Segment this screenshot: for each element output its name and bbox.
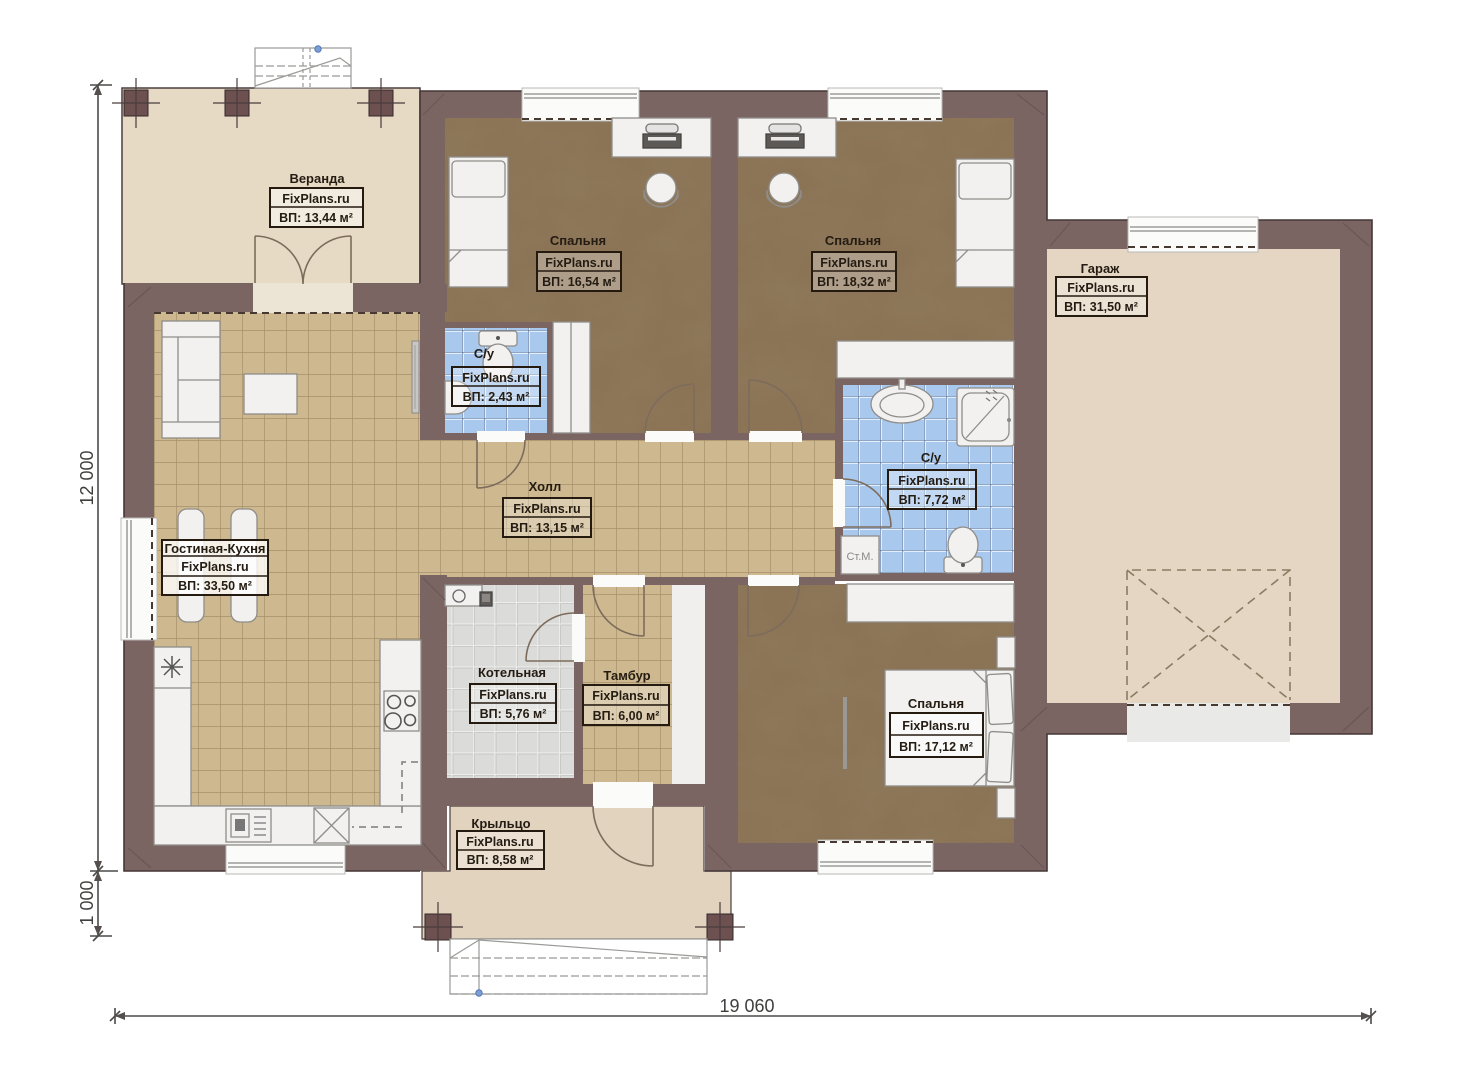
svg-text:Веранда: Веранда [289, 171, 345, 186]
svg-text:ВП: 33,50 м²: ВП: 33,50 м² [178, 579, 252, 593]
svg-text:ВП: 31,50 м²: ВП: 31,50 м² [1064, 300, 1138, 314]
svg-text:ВП: 7,72 м²: ВП: 7,72 м² [899, 493, 966, 507]
svg-text:С/у: С/у [474, 346, 495, 361]
svg-text:FixPlans.ru: FixPlans.ru [513, 502, 580, 516]
svg-text:ВП: 8,58 м²: ВП: 8,58 м² [467, 853, 534, 867]
svg-text:ВП: 2,43 м²: ВП: 2,43 м² [463, 390, 530, 404]
svg-text:Котельная: Котельная [478, 665, 546, 680]
svg-text:FixPlans.ru: FixPlans.ru [898, 474, 965, 488]
svg-text:FixPlans.ru: FixPlans.ru [181, 560, 248, 574]
svg-text:Ст.М.: Ст.М. [846, 551, 873, 563]
svg-text:FixPlans.ru: FixPlans.ru [820, 256, 887, 270]
svg-text:FixPlans.ru: FixPlans.ru [592, 689, 659, 703]
svg-text:Холл: Холл [529, 479, 562, 494]
svg-text:1 000: 1 000 [77, 880, 97, 925]
svg-text:19 060: 19 060 [719, 996, 774, 1016]
svg-text:FixPlans.ru: FixPlans.ru [545, 256, 612, 270]
svg-text:FixPlans.ru: FixPlans.ru [466, 835, 533, 849]
svg-text:ВП: 6,00 м²: ВП: 6,00 м² [593, 709, 660, 723]
svg-text:С/у: С/у [921, 450, 942, 465]
svg-text:ВП: 13,44 м²: ВП: 13,44 м² [279, 211, 353, 225]
svg-text:Спальня: Спальня [908, 696, 964, 711]
svg-text:Спальня: Спальня [550, 233, 606, 248]
svg-text:FixPlans.ru: FixPlans.ru [902, 719, 969, 733]
svg-text:FixPlans.ru: FixPlans.ru [1067, 281, 1134, 295]
svg-text:Гостиная-Кухня: Гостиная-Кухня [164, 541, 265, 556]
svg-text:ВП: 17,12 м²: ВП: 17,12 м² [899, 740, 973, 754]
svg-text:FixPlans.ru: FixPlans.ru [282, 192, 349, 206]
svg-text:12 000: 12 000 [77, 450, 97, 505]
svg-text:FixPlans.ru: FixPlans.ru [462, 371, 529, 385]
svg-text:ВП: 13,15 м²: ВП: 13,15 м² [510, 521, 584, 535]
svg-text:Крыльцо: Крыльцо [471, 816, 530, 831]
svg-text:ВП: 16,54 м²: ВП: 16,54 м² [542, 275, 616, 289]
svg-text:ВП: 5,76 м²: ВП: 5,76 м² [480, 707, 547, 721]
svg-text:Спальня: Спальня [825, 233, 881, 248]
svg-text:Тамбур: Тамбур [603, 668, 650, 683]
svg-text:Гараж: Гараж [1081, 261, 1121, 276]
svg-text:ВП: 18,32 м²: ВП: 18,32 м² [817, 275, 891, 289]
svg-text:FixPlans.ru: FixPlans.ru [479, 688, 546, 702]
